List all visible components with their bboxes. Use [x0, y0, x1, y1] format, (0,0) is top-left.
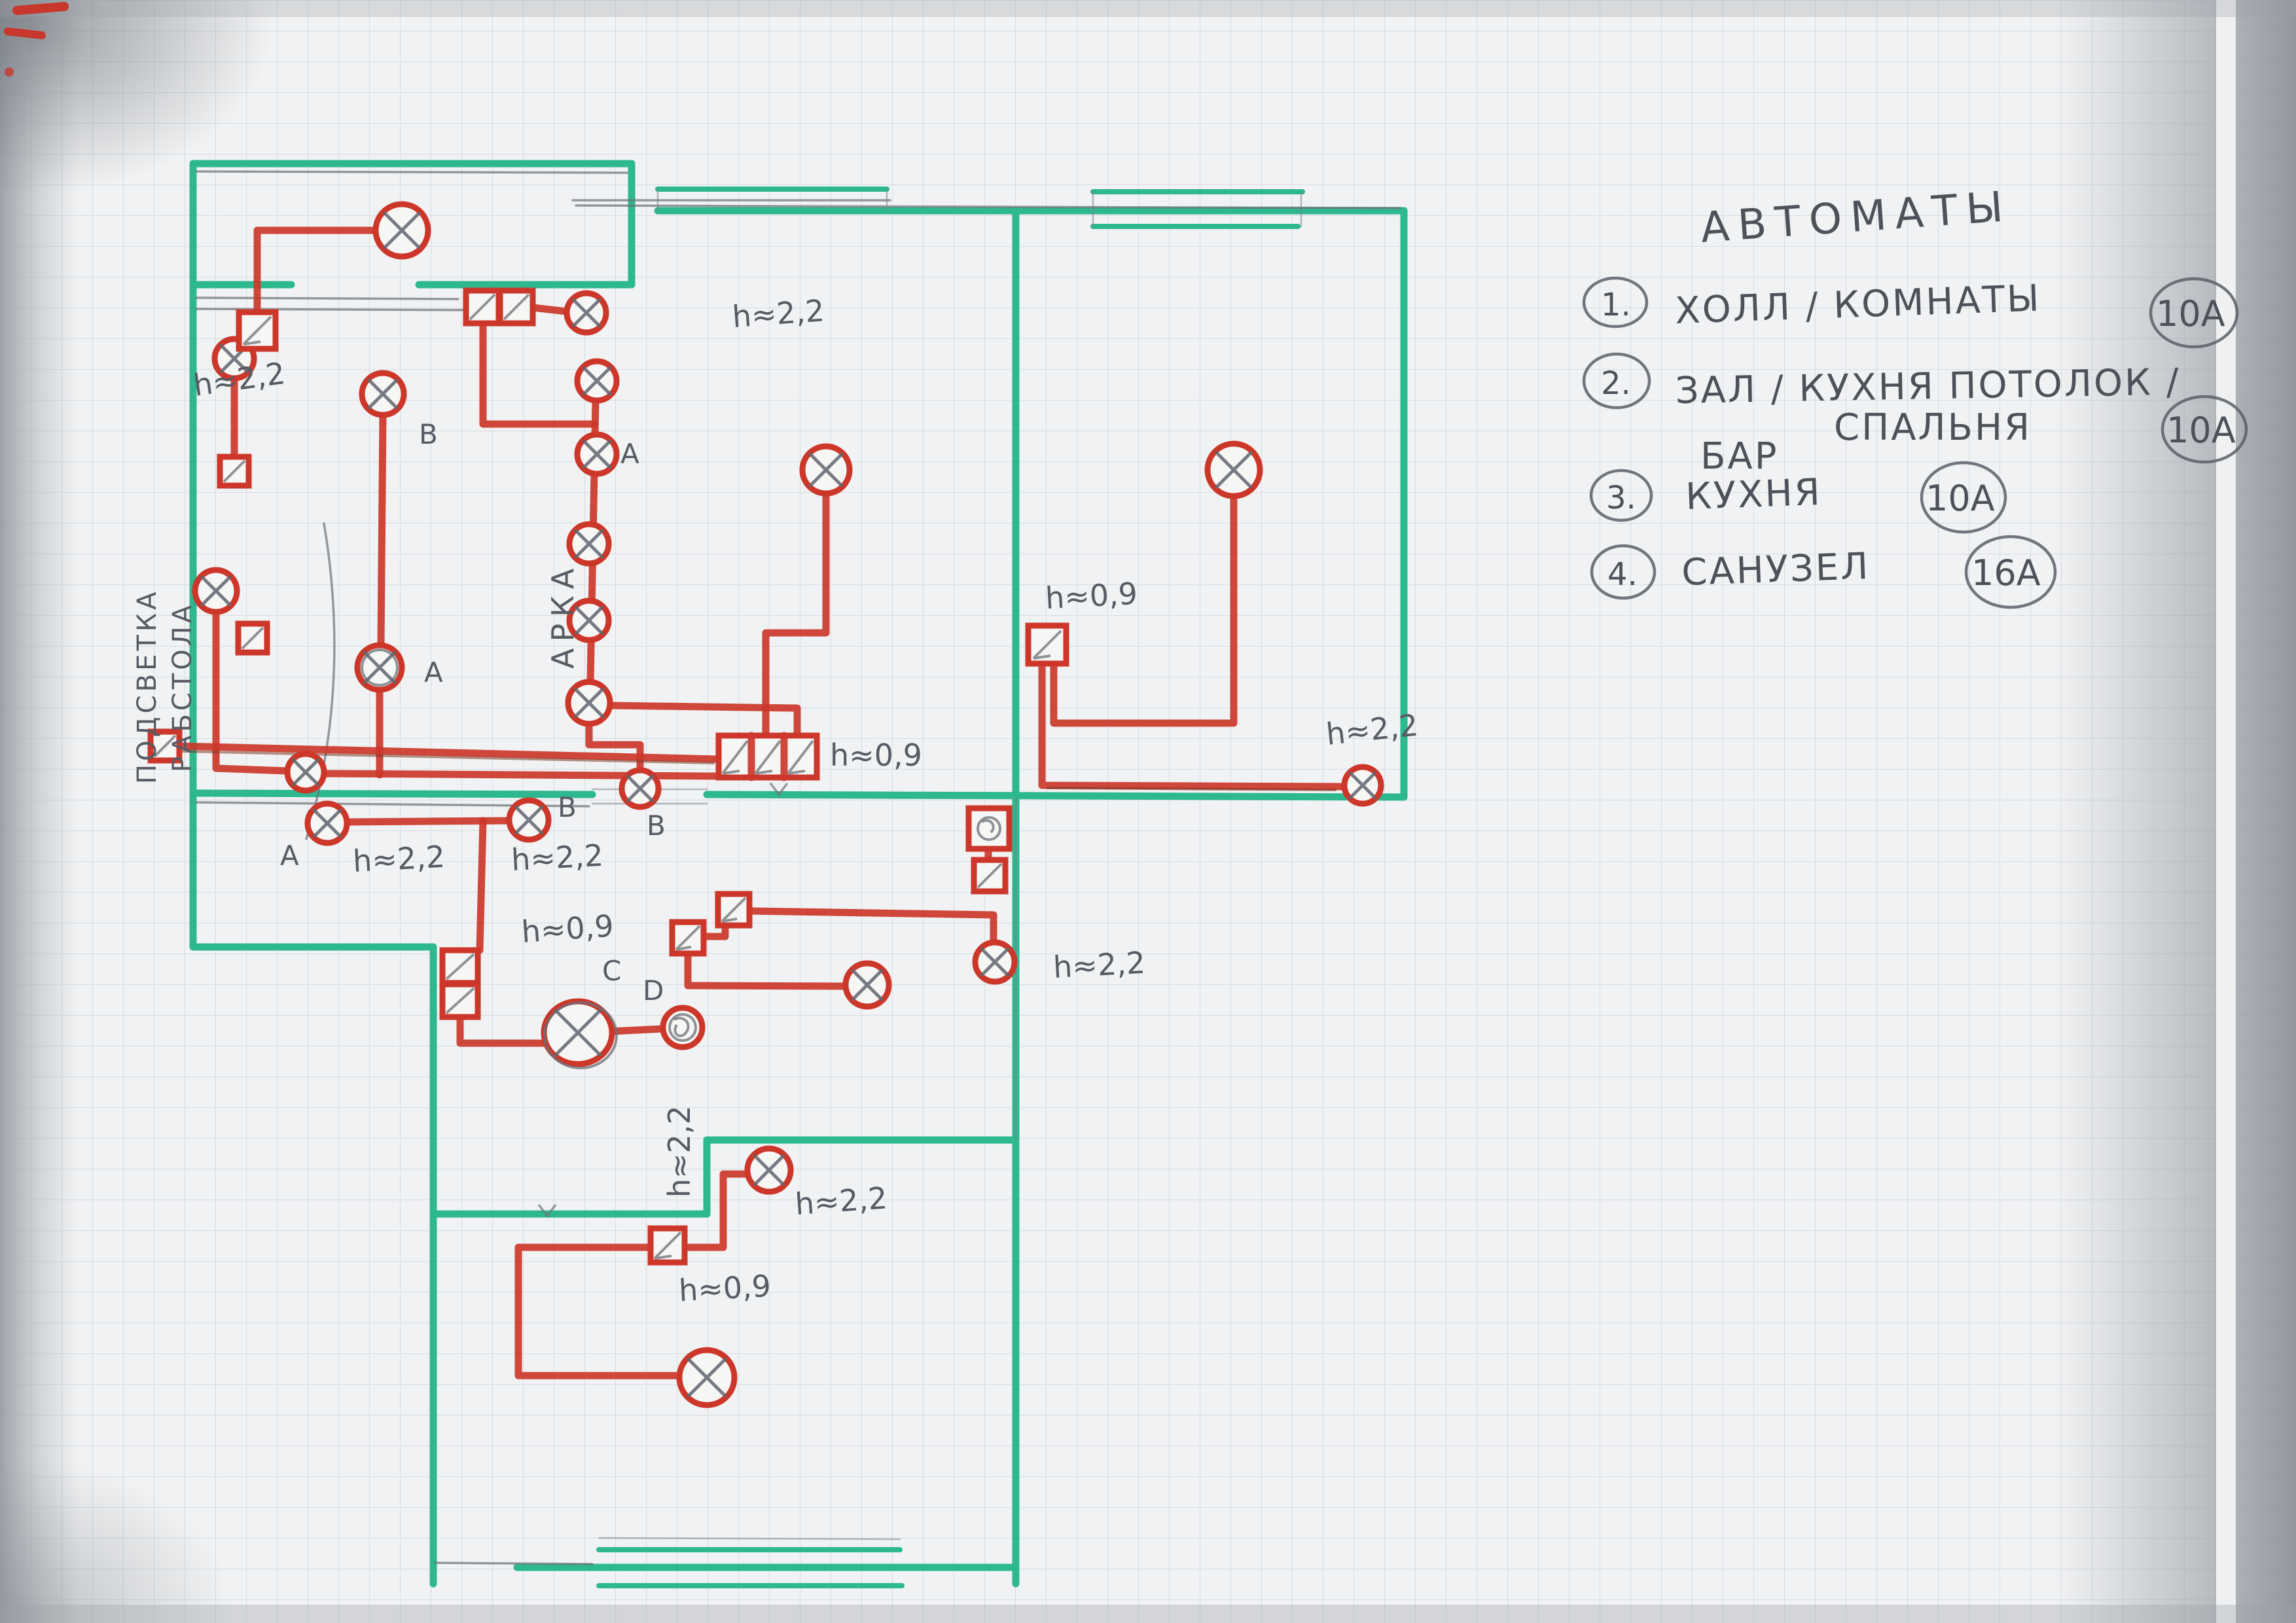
- switch-bottom-room: [651, 1228, 685, 1262]
- scan-shade-bottomleft: [0, 1427, 275, 1623]
- label-h22-bar: h≈2,2: [794, 1180, 888, 1222]
- scan-streak: [2216, 0, 2236, 1623]
- label-rabstola: РАБСТОЛА: [168, 602, 198, 772]
- lamp-bar-inner: [846, 963, 889, 1007]
- floor-plan-svg: h≈2,2 h≈2,2 h≈0,9 h≈2,2 h≈0,9 h≈2,2 h≈2,…: [0, 0, 2296, 1623]
- lamp-worktop: [287, 754, 324, 791]
- scan-shade-left: [0, 0, 79, 1623]
- switch-b: [672, 922, 704, 954]
- label-h22-vertical: h≈2,2: [662, 1105, 697, 1198]
- letter-b-lamp-b1: B: [558, 791, 577, 823]
- switch-bedroom: [1028, 626, 1066, 664]
- scan-shade-bottom: [0, 1605, 2296, 1623]
- scanned-page: h≈2,2 h≈2,2 h≈0,9 h≈2,2 h≈0,9 h≈2,2 h≈2,…: [0, 0, 2296, 1623]
- scan-shade-right: [2055, 0, 2296, 1623]
- pencil-bottomwall-left: [435, 1563, 592, 1564]
- label-h09-bedroom: h≈0,9: [1045, 576, 1138, 616]
- legend-num-3: 3.: [1606, 480, 1636, 516]
- wire-c-to-d: [611, 1029, 663, 1031]
- lamp-living: [802, 446, 850, 493]
- lamp-bedroom-low: [1344, 767, 1381, 804]
- lamp-arch-5: [568, 682, 610, 724]
- lamp-hall: [376, 204, 428, 257]
- outlet-box: [969, 808, 1009, 849]
- switch-stack: [442, 950, 478, 1017]
- letter-d-lamp: D: [643, 974, 664, 1007]
- legend-label-2: ЗАЛ / КУХНЯ ПОТОЛОК /: [1675, 361, 2181, 412]
- label-arka: АРКА: [545, 562, 581, 669]
- lamp-leftwall-lower: [195, 570, 237, 612]
- label-h22-b1: h≈2,2: [511, 838, 604, 878]
- wire-b0-a0: [381, 415, 383, 645]
- lamp-c: [544, 1001, 617, 1068]
- label-h22-wall-lamp: h≈2,2: [1052, 945, 1146, 985]
- label-podsvetka: ПОДСВЕТКА: [132, 588, 162, 784]
- lamp-a2: [308, 804, 347, 843]
- letter-b-lamp-b2: B: [647, 810, 666, 842]
- legend-label-2b: СПАЛЬНЯ: [1834, 406, 2032, 449]
- legend-label-3-pre: БАР: [1700, 435, 1779, 478]
- letter-c-lamp: C: [602, 955, 621, 987]
- letter-a-arch: A: [620, 438, 639, 470]
- lamp-arch-2: [577, 435, 617, 474]
- switch-pair-arch: [466, 291, 533, 323]
- legend-amp-3: 10А: [1926, 478, 1995, 519]
- lamp-b1: [509, 800, 548, 840]
- scan-shade-top: [0, 0, 2296, 17]
- lamp-arch-1: [577, 361, 617, 401]
- switch-a: [718, 894, 749, 925]
- legend-label-3: КУХНЯ: [1685, 471, 1822, 518]
- letter-a-lamp-a0: A: [424, 656, 443, 688]
- lamp-bar-top: [747, 1149, 791, 1192]
- label-h22-a2: h≈2,2: [352, 839, 446, 879]
- pencil-topwall-shadow: [196, 171, 627, 173]
- legend-num-1: 1.: [1601, 287, 1631, 323]
- label-h09-triple: h≈0,9: [830, 738, 922, 773]
- lamp-b0: [362, 373, 404, 415]
- lamp-bedroom: [1208, 444, 1260, 496]
- wall-middle-b: [707, 794, 1404, 797]
- lamp-bottom-room: [679, 1350, 734, 1405]
- label-h09-stack: h≈0,9: [520, 908, 615, 950]
- lamp-b2: [622, 770, 658, 807]
- legend-num-4: 4.: [1607, 556, 1638, 593]
- lamp-arch-top: [567, 293, 606, 332]
- legend-amp-4: 16А: [1971, 552, 2041, 594]
- wall-middle-a: [193, 793, 592, 794]
- lamp-d: [663, 1008, 702, 1047]
- letter-a-lamp-a2: A: [280, 840, 299, 872]
- switch-standalone: [238, 624, 267, 652]
- switch-below-outlet: [974, 860, 1005, 891]
- letter-b-lamp-b0: B: [419, 418, 438, 450]
- lamp-arch-3: [569, 524, 609, 563]
- legend-amp-2: 10А: [2166, 410, 2236, 451]
- legend-label-4: САНУЗЕЛ: [1681, 545, 1871, 594]
- pencil-door-topleft-a: [196, 298, 458, 299]
- wire-b1-drop: [480, 821, 483, 950]
- wire-pair-to-lamp: [533, 308, 567, 312]
- legend-num-2: 2.: [1601, 365, 1631, 402]
- label-h22-arch-top: h≈2,2: [731, 293, 825, 334]
- lamp-h22-wall: [975, 942, 1014, 982]
- label-h09-bottom: h≈0,9: [678, 1268, 772, 1308]
- switch-leftwall-small: [220, 457, 249, 486]
- lamp-a0: [357, 645, 402, 690]
- switch-triple: [719, 736, 817, 777]
- switch-hall: [239, 312, 276, 349]
- legend-amp-1: 10А: [2156, 293, 2225, 334]
